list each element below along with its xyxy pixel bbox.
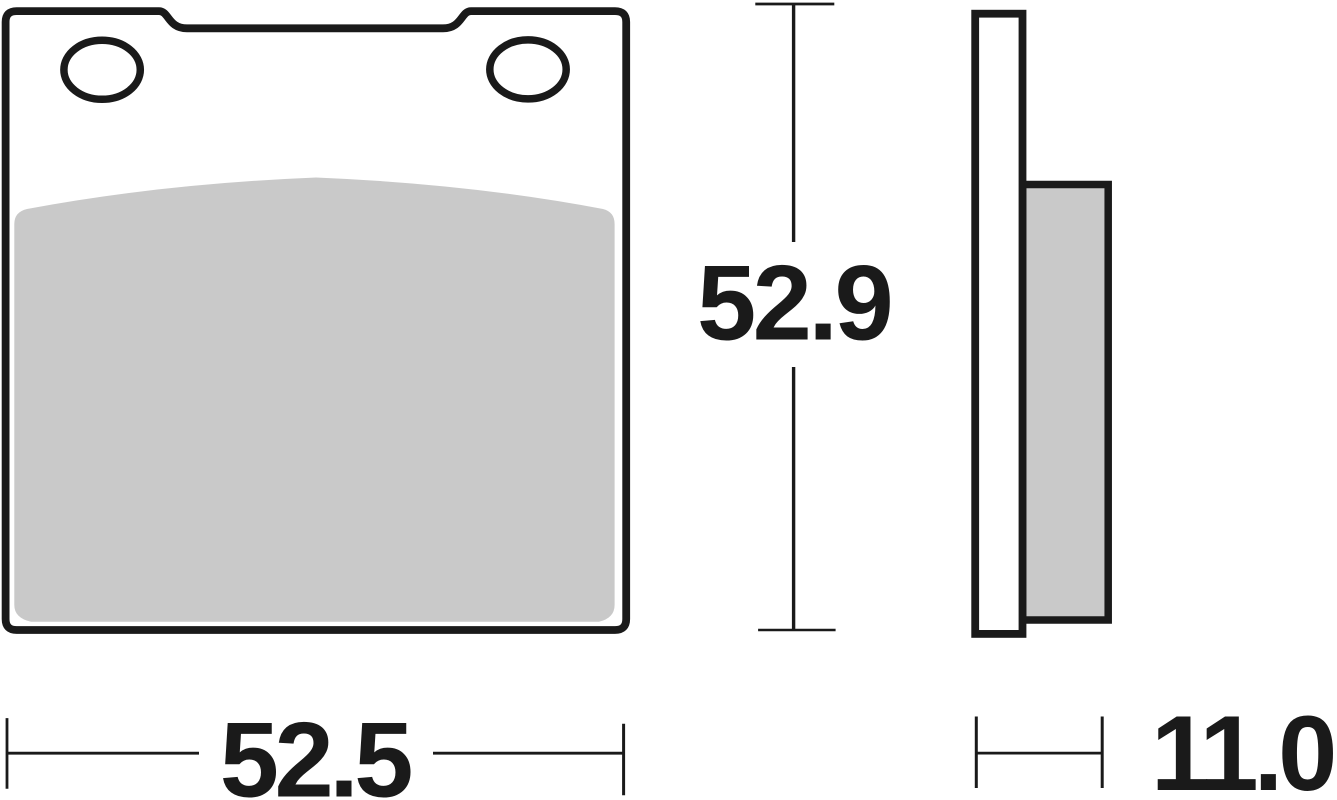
- svg-text:52.9: 52.9: [697, 244, 891, 363]
- svg-text:52.5: 52.5: [220, 701, 412, 800]
- svg-text:11.0: 11.0: [1151, 694, 1333, 800]
